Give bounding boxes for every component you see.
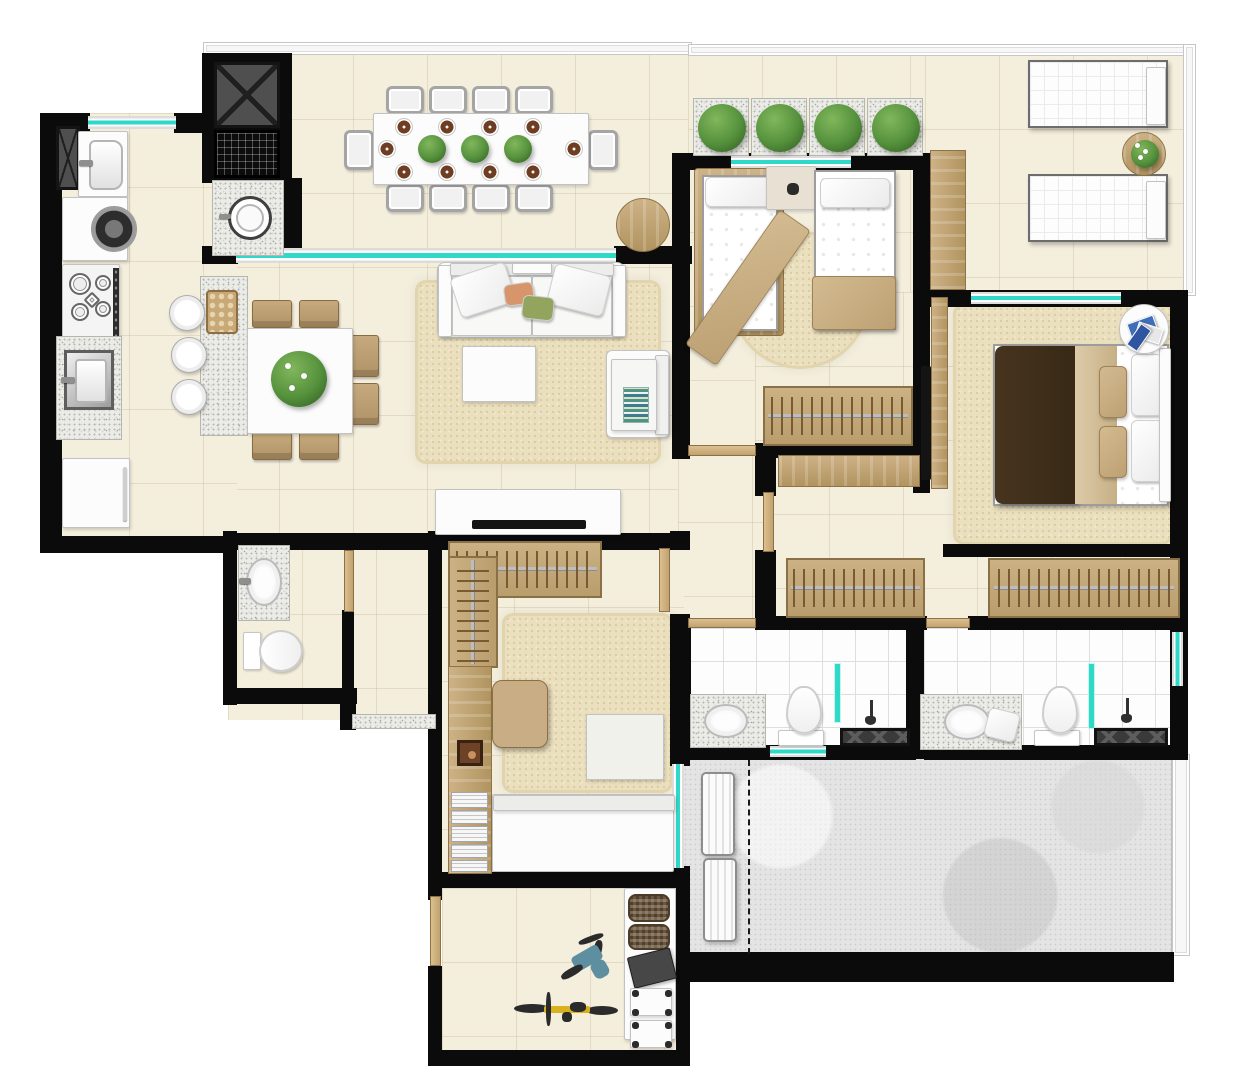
- wicker-basket: [628, 924, 670, 950]
- den-closet-side: [448, 556, 498, 668]
- dining-chair: [386, 86, 424, 114]
- expansion-dashed-line: [748, 760, 750, 954]
- armchair: [606, 350, 670, 438]
- kitchen-chair: [351, 335, 379, 377]
- table-centerpiece-plant: [504, 135, 532, 163]
- master-window: [971, 292, 1121, 304]
- wall: [672, 153, 690, 459]
- bar-stool: [171, 379, 207, 415]
- place-setting: [524, 163, 542, 181]
- corner: [632, 1041, 639, 1048]
- sofa-arm: [438, 265, 452, 337]
- table-centerpiece-plant: [461, 135, 489, 163]
- bar-stool: [169, 295, 205, 331]
- bath1-shower-head: [862, 700, 880, 730]
- dining-chair: [472, 86, 510, 114]
- entry-threshold: [352, 714, 436, 729]
- master-bed: [993, 336, 1171, 514]
- bike-handlebar: [546, 992, 551, 1026]
- corner: [665, 990, 672, 997]
- floor-pouf: [586, 714, 664, 780]
- corner: [632, 1009, 639, 1016]
- folding-lounger: [703, 858, 737, 942]
- bath1-shower-floor: [840, 728, 910, 746]
- basin: [75, 359, 107, 403]
- balcony-sliding-glass-door: [236, 248, 616, 263]
- terrace-plant-table: [1122, 132, 1166, 176]
- tricycle: [548, 934, 614, 992]
- flower: [289, 385, 295, 391]
- kitchen-chair: [299, 432, 339, 460]
- storage-door: [430, 896, 441, 966]
- recliner-chair: [492, 680, 548, 748]
- flower: [1135, 143, 1140, 148]
- corner: [665, 1009, 672, 1016]
- wall-decor-frame: [457, 740, 483, 766]
- accent-pillow-green: [521, 294, 555, 321]
- lounger-pillow: [1146, 67, 1166, 125]
- place-setting: [378, 140, 396, 158]
- nightstand: [766, 166, 816, 210]
- recliner-split: [520, 691, 522, 739]
- bath2-shower-floor: [1094, 728, 1168, 746]
- place-setting: [565, 140, 583, 158]
- cooktop: [62, 264, 120, 338]
- kitchen-table-plant: [271, 351, 327, 407]
- master-closet: [988, 558, 1180, 618]
- corner: [665, 1041, 672, 1048]
- planter-box: [693, 98, 749, 156]
- master-sideboard: [778, 455, 920, 487]
- kitchen-sink: [64, 350, 114, 410]
- sofa-arm: [612, 265, 626, 337]
- storage-tray: [630, 1020, 672, 1048]
- bathroom1-window: [770, 746, 826, 757]
- planter-bush: [814, 104, 862, 152]
- dining-chair: [344, 130, 374, 170]
- master-side-table: [1119, 304, 1169, 354]
- wall: [682, 952, 1174, 982]
- kitchen-chair: [351, 383, 379, 425]
- bath2-shower-glass: [1089, 664, 1094, 728]
- bathroom2-window: [1172, 632, 1183, 686]
- decor-item: [787, 183, 799, 195]
- wall: [968, 616, 1188, 630]
- wall: [428, 872, 690, 888]
- accent-pillow: [1099, 366, 1127, 418]
- dining-chair: [429, 184, 467, 212]
- sofa: [437, 262, 625, 338]
- duct-shaft: [56, 126, 80, 190]
- magazine-stack: [451, 792, 488, 808]
- burner: [95, 275, 111, 291]
- bath2-shower-head: [1118, 698, 1136, 728]
- wall: [40, 536, 236, 553]
- planter-box: [751, 98, 807, 156]
- burner: [69, 273, 91, 295]
- tv: [472, 520, 586, 529]
- grill: [214, 62, 280, 128]
- magazine-stack: [451, 844, 488, 858]
- facade-edge: [1172, 754, 1190, 956]
- console-tray: [512, 263, 552, 274]
- planter-box: [809, 98, 865, 156]
- bath1-sink: [704, 704, 748, 738]
- kitchen-chair: [252, 432, 292, 460]
- service-terrace-floor: [682, 756, 1172, 956]
- washing-machine: [62, 197, 128, 261]
- place-setting: [395, 163, 413, 181]
- planter-bush: [872, 104, 920, 152]
- twin-room-closet: [763, 386, 913, 446]
- foot-bench: [812, 276, 896, 330]
- striped-pillow: [623, 387, 649, 423]
- bathroom1-door-threshold: [688, 618, 756, 628]
- duvet-brown: [995, 346, 1077, 504]
- flower: [301, 373, 307, 379]
- wall: [223, 531, 237, 705]
- corner: [632, 990, 639, 997]
- bath2-sink: [944, 704, 990, 740]
- faucet: [79, 160, 93, 166]
- place-setting: [438, 118, 456, 136]
- dining-chair: [515, 86, 553, 114]
- dressing-closet: [786, 558, 925, 618]
- magazine-stack: [451, 860, 488, 872]
- terrace-wood-panel: [930, 150, 966, 290]
- wall: [223, 688, 357, 704]
- den-daybed: [492, 794, 674, 872]
- frame-center: [468, 751, 476, 759]
- flower: [1138, 155, 1143, 160]
- floor-plan: [0, 0, 1239, 1080]
- powder-door: [344, 550, 354, 612]
- grill-rack: [214, 130, 280, 178]
- bed-pillow: [705, 177, 773, 207]
- kitchen-chair: [252, 300, 292, 328]
- balcony-round-side-table: [616, 198, 670, 252]
- storage-tray: [630, 988, 672, 1016]
- wall: [670, 614, 690, 766]
- accent-pillow: [1099, 426, 1127, 478]
- wicker-basket: [628, 894, 670, 922]
- bath2-toilet-bowl: [1042, 686, 1078, 734]
- dining-chair: [429, 86, 467, 114]
- dining-chair: [386, 184, 424, 212]
- burner: [71, 303, 89, 321]
- bath1-shower-glass: [835, 664, 840, 722]
- dining-chair: [588, 130, 618, 170]
- wall: [670, 531, 690, 550]
- place-setting: [438, 163, 456, 181]
- bed-pillow: [820, 178, 890, 208]
- refrigerator: [62, 458, 130, 528]
- bike-pedal: [562, 1012, 572, 1022]
- place-setting: [395, 118, 413, 136]
- serving-tray: [206, 290, 238, 334]
- bicycle: [514, 988, 618, 1034]
- powder-toilet-bowl: [259, 630, 303, 672]
- table-centerpiece-plant: [418, 135, 446, 163]
- sun-lounger: [1028, 174, 1168, 242]
- place-setting: [481, 118, 499, 136]
- daybed-back: [493, 795, 675, 811]
- flower: [285, 363, 291, 369]
- folding-lounger: [701, 772, 735, 856]
- kitchen-chair: [299, 300, 339, 328]
- coffee-table: [462, 346, 536, 402]
- flower: [1143, 149, 1148, 154]
- wall: [428, 531, 442, 888]
- powder-sink: [246, 558, 282, 606]
- fridge-handle: [123, 467, 127, 521]
- faucet: [61, 377, 75, 383]
- washer-door: [91, 206, 137, 252]
- basin: [89, 140, 123, 190]
- facade-edge: [1183, 44, 1196, 296]
- wall: [755, 616, 927, 630]
- bike-seat: [570, 1002, 586, 1012]
- den-shelf: [448, 666, 492, 874]
- sun-lounger: [1028, 60, 1168, 128]
- planter-bush: [698, 104, 746, 152]
- bathroom2-door-threshold: [926, 618, 970, 628]
- daybed-divider: [583, 811, 585, 873]
- bar-stool: [171, 337, 207, 373]
- facade-edge: [688, 44, 1193, 56]
- laundry-window: [88, 116, 176, 129]
- corner: [632, 1022, 639, 1029]
- faucet: [219, 214, 231, 219]
- magazine-stack: [451, 810, 488, 824]
- wall: [342, 610, 354, 690]
- grill-round-sink: [228, 196, 272, 240]
- bedroom-twin-door: [688, 445, 756, 456]
- dining-chair: [472, 184, 510, 212]
- lounger-pillow: [1146, 181, 1166, 239]
- headboard: [1159, 348, 1171, 502]
- den-door: [659, 548, 670, 612]
- wall: [755, 458, 776, 496]
- master-cabinet: [931, 297, 948, 489]
- trike-rear-wheel: [560, 963, 585, 982]
- armchair-back: [655, 355, 669, 435]
- bike-wheel: [586, 1006, 618, 1015]
- planter-bush: [756, 104, 804, 152]
- control-strip: [113, 268, 119, 336]
- master-tv-panel: [921, 366, 931, 480]
- corner: [665, 1022, 672, 1029]
- planter-box: [867, 98, 923, 156]
- wall: [943, 544, 1188, 557]
- laundry-sink: [78, 131, 128, 197]
- wall: [428, 1050, 690, 1066]
- burner: [95, 301, 111, 317]
- place-setting: [524, 118, 542, 136]
- faucet: [239, 578, 251, 584]
- place-setting: [481, 163, 499, 181]
- magazine-stack: [451, 826, 488, 842]
- dining-chair: [515, 184, 553, 212]
- master-door: [763, 492, 774, 552]
- bath1-toilet-bowl: [786, 686, 822, 734]
